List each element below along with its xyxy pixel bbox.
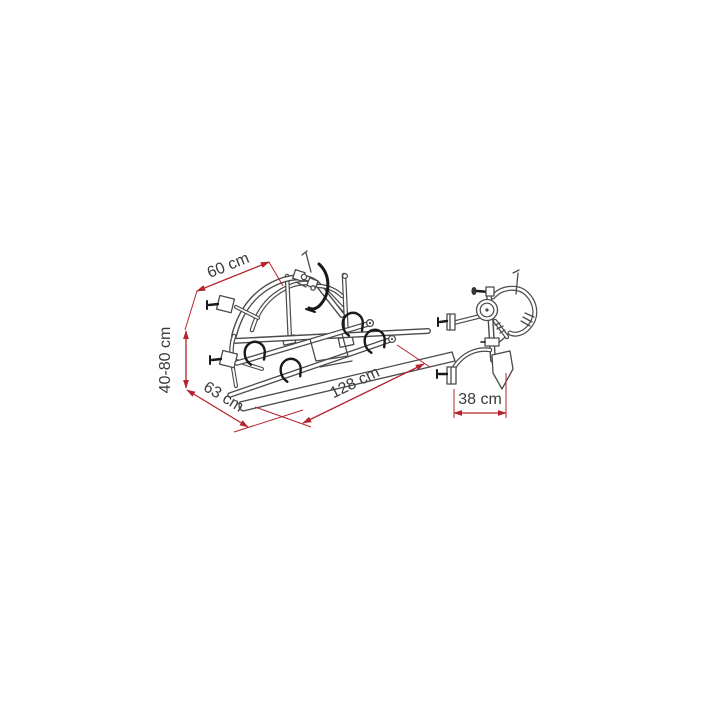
side-lower-arm bbox=[452, 350, 490, 373]
side-upper-clamp bbox=[438, 314, 455, 330]
side-lower-clamp bbox=[437, 367, 456, 384]
product-image-page: 60 cm 40-80 cm 63 cm 128 cm 38 cm bbox=[0, 0, 720, 720]
support-post-left bbox=[287, 276, 290, 342]
dimension-label: 60 cm bbox=[205, 250, 252, 282]
extension-line bbox=[185, 291, 197, 330]
dimension-label: 63 cm bbox=[200, 379, 246, 416]
adjuster-knob bbox=[311, 286, 315, 290]
side-ring-mount bbox=[477, 300, 498, 321]
bolt-knob bbox=[471, 287, 476, 295]
dimension-label: 38 cm bbox=[458, 391, 502, 408]
side-bottom-plate bbox=[492, 351, 513, 389]
adjuster-knob bbox=[301, 274, 306, 279]
dimension-label: 40-80 cm bbox=[157, 327, 174, 394]
side-inner-tube bbox=[495, 321, 507, 337]
side-upper-arm bbox=[453, 316, 481, 323]
product-dimension-diagram: 60 cm 40-80 cm 63 cm 128 cm 38 cm bbox=[0, 0, 720, 720]
side-collar-clamp bbox=[481, 338, 499, 346]
side-top-bolt bbox=[471, 287, 494, 296]
side-hook-arm bbox=[493, 288, 535, 344]
dimension-63cm: 63 cm bbox=[187, 379, 303, 432]
mounting-clamp-lower bbox=[210, 351, 237, 368]
dimension-40-80cm: 40-80 cm bbox=[157, 327, 186, 394]
dimension-label: 128 cm bbox=[328, 364, 383, 402]
mounting-clamp-upper bbox=[207, 296, 234, 313]
extension-line bbox=[234, 410, 303, 432]
side-view-drawing bbox=[437, 270, 535, 389]
antenna-rod bbox=[302, 251, 311, 272]
